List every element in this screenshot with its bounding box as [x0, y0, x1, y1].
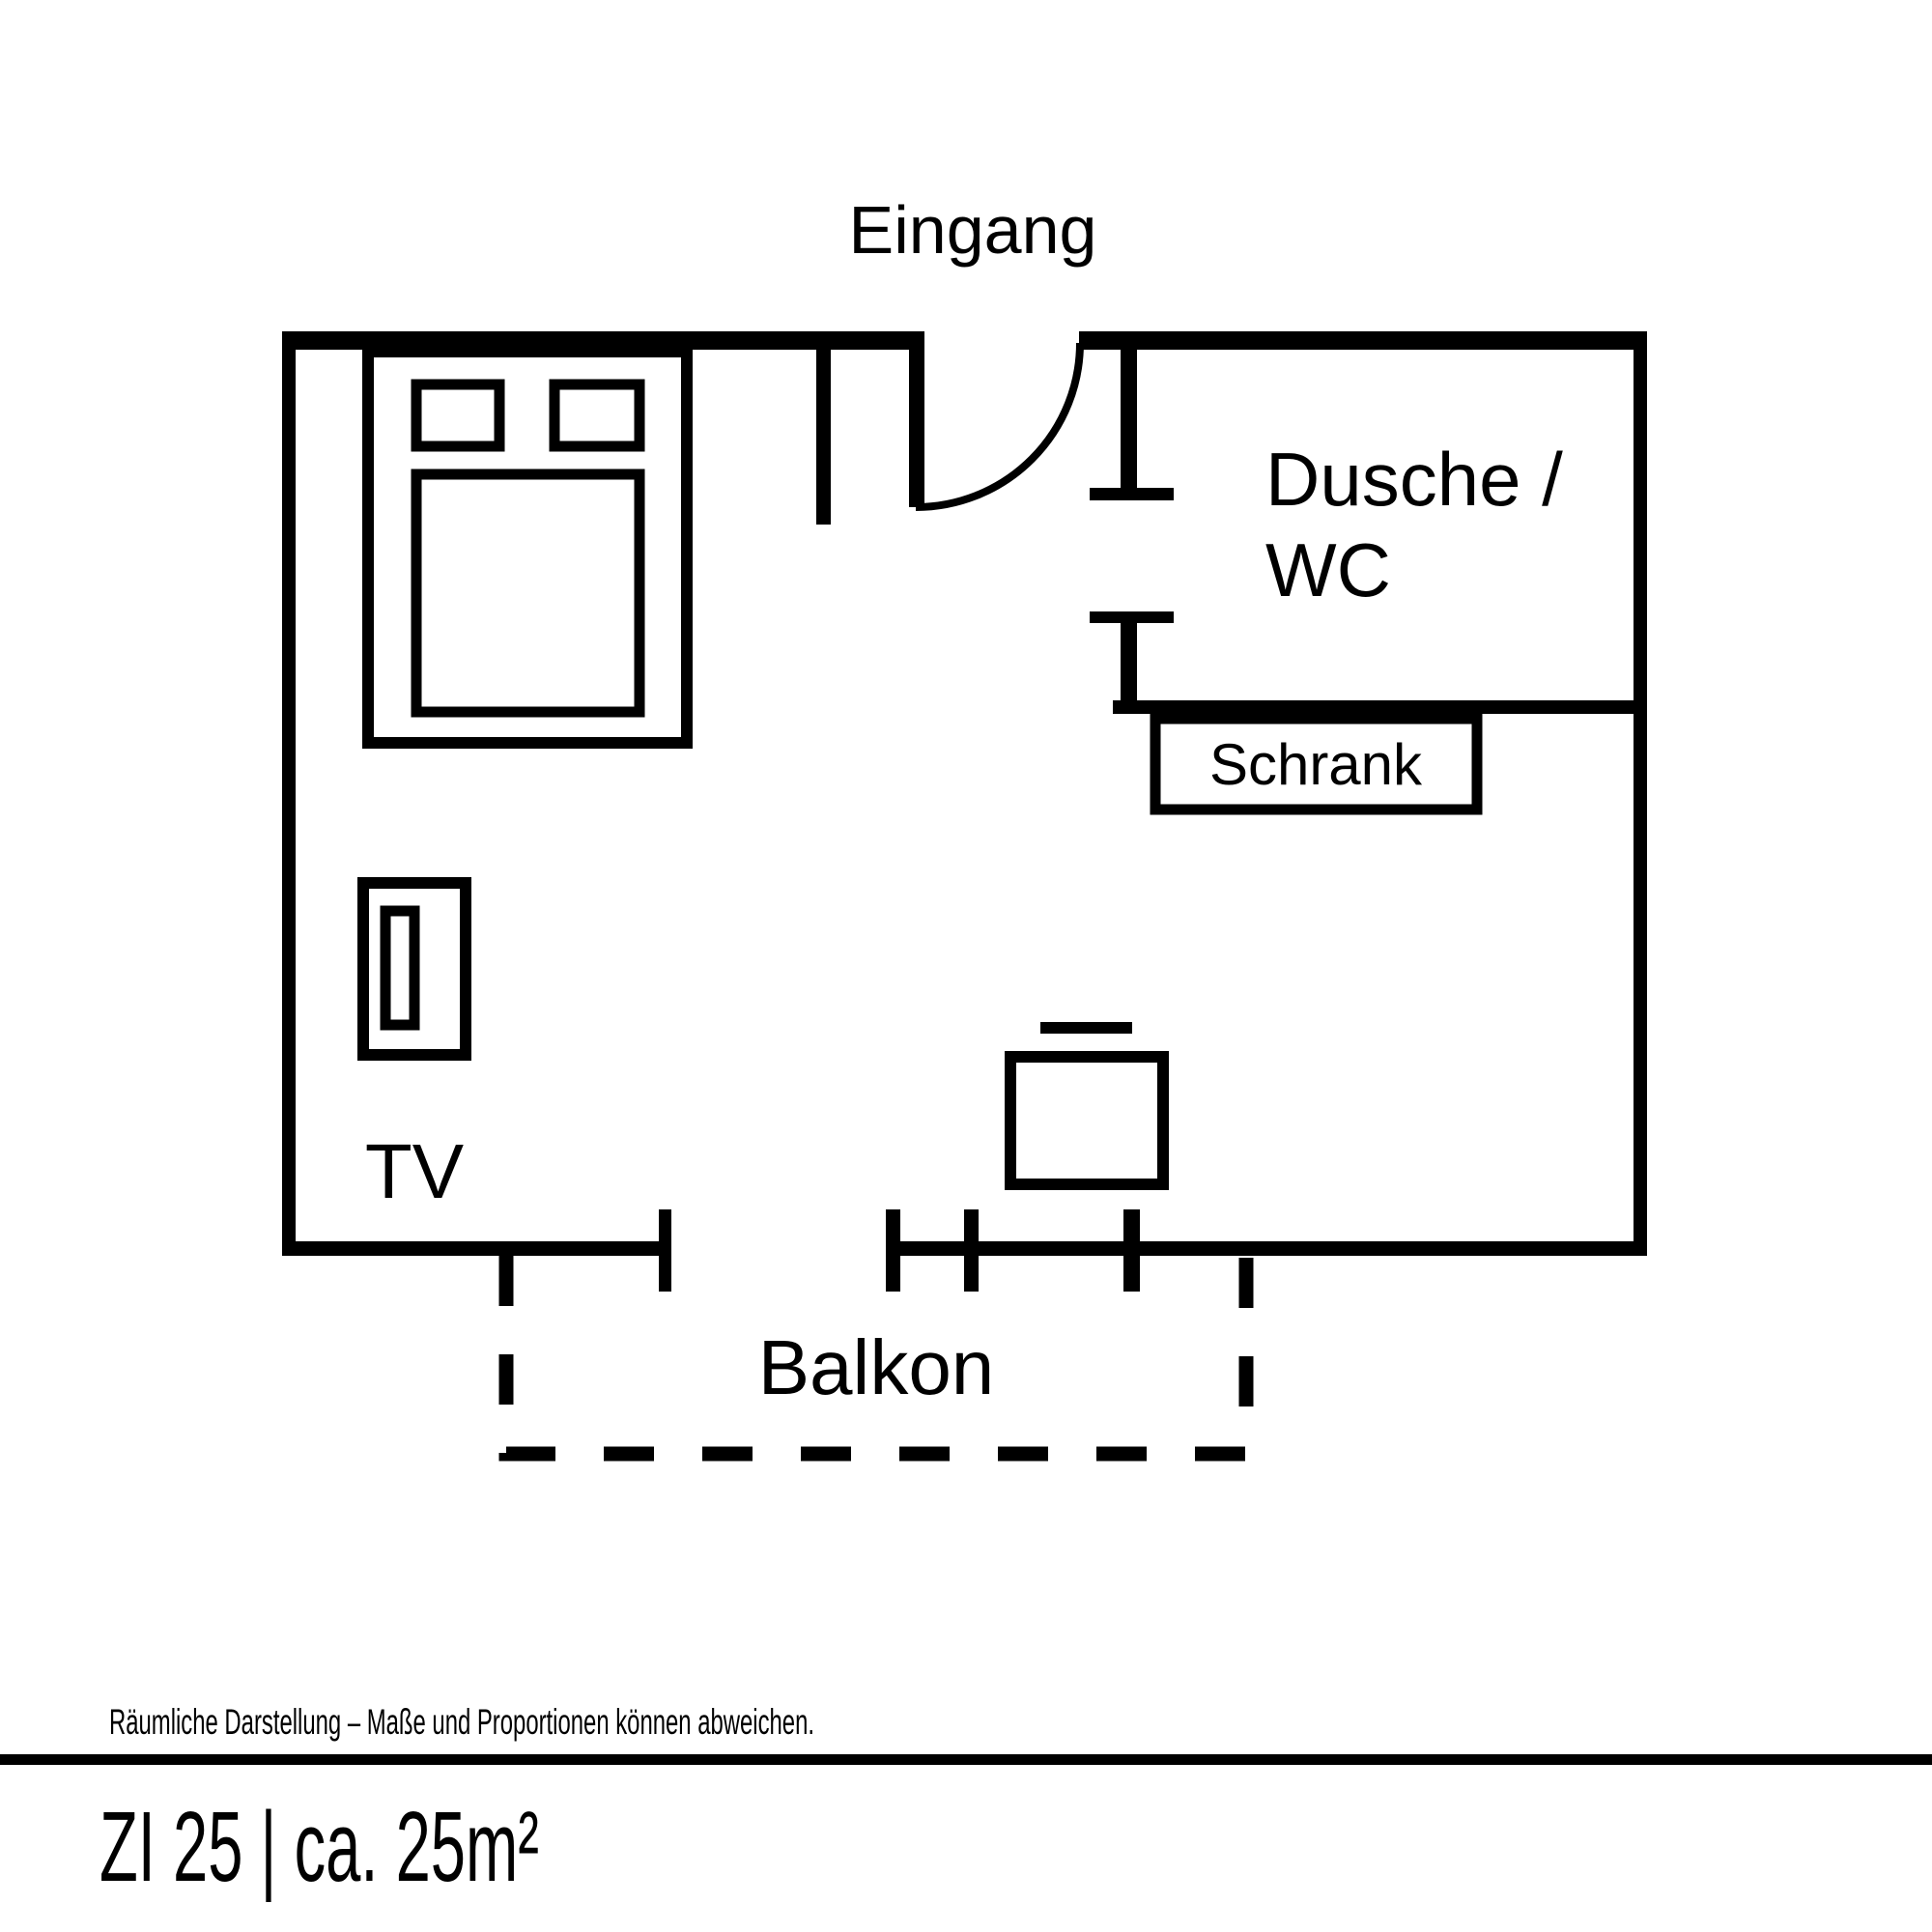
- desk-with-chair: [1010, 1022, 1163, 1184]
- desk: [1010, 1057, 1163, 1184]
- bathroom-label-line2: WC: [1265, 527, 1391, 612]
- bathroom-left-wall-upper: [1121, 350, 1137, 488]
- window-frame-tick-1: [886, 1209, 900, 1292]
- pillow-left: [416, 384, 499, 446]
- floorplan-canvas: Eingang Dusche / WC Schrank TV Balkon Rä…: [0, 0, 1932, 1932]
- bathroom-doorway-lower-cap: [1090, 611, 1174, 623]
- bathroom-doorway-upper-cap: [1090, 488, 1174, 500]
- footer: Räumliche Darstellung – Maße und Proport…: [0, 1702, 1932, 1902]
- wardrobe-label: Schrank: [1209, 732, 1423, 797]
- window-frame-tick-2: [964, 1209, 979, 1292]
- entrance-door: [816, 335, 1080, 525]
- chair-bar: [1040, 1022, 1132, 1034]
- door-swing-arc: [916, 343, 1080, 507]
- top-wall-right-segment: [1079, 331, 1647, 350]
- tv-label: TV: [365, 1128, 465, 1214]
- room-title: ZI 25 | ca. 25m²: [99, 1791, 539, 1902]
- balcony-label: Balkon: [758, 1324, 995, 1410]
- bottom-wall-window-segment-1: [900, 1241, 964, 1256]
- bottom-wall-right-segment: [1140, 1241, 1647, 1256]
- tv-screen: [385, 911, 414, 1025]
- floorplan-page: Eingang Dusche / WC Schrank TV Balkon Rä…: [0, 0, 1932, 1932]
- right-wall: [1634, 331, 1647, 1256]
- left-wall: [282, 331, 296, 1256]
- tv-unit: [363, 883, 466, 1055]
- disclaimer-text: Räumliche Darstellung – Maße und Proport…: [109, 1702, 814, 1742]
- door-leaf: [909, 335, 924, 507]
- bottom-wall-window-segment-2: [979, 1241, 1123, 1256]
- window-frame-tick-3: [1123, 1209, 1140, 1292]
- balcony-door-jamb-tick: [659, 1209, 671, 1292]
- bed: [368, 352, 687, 743]
- footer-divider-rule: [0, 1754, 1932, 1765]
- bathroom-label-line1: Dusche /: [1265, 437, 1563, 522]
- pillow-right: [554, 384, 639, 446]
- bathroom-left-wall-lower: [1121, 623, 1137, 714]
- bottom-wall-left-segment: [282, 1241, 660, 1256]
- bathroom-bottom-wall: [1113, 700, 1647, 714]
- entrance-label: Eingang: [849, 192, 1097, 268]
- mattress: [416, 474, 639, 712]
- entry-partition-stub: [816, 350, 831, 525]
